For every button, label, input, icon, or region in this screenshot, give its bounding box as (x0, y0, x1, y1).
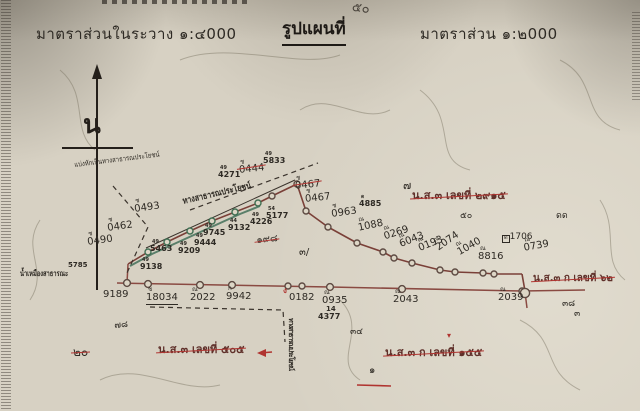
handwritten-mark: ๓๔ (350, 328, 363, 337)
red-caret-mark: ▾ (447, 332, 451, 340)
distance-number: 0182 (289, 293, 314, 303)
distance-number: 9189 (103, 290, 128, 300)
parcel-number: ณ8816 (478, 246, 503, 262)
distance-number: ณ2022 (190, 287, 215, 303)
parcel-number: ณ0739 (522, 234, 550, 254)
handwritten-mark: ๓ (574, 310, 580, 319)
parcel-number-crossed: ช0444 (238, 157, 265, 176)
vertical-stamp-label: ทางสาธารณประโยชน์ (287, 318, 294, 370)
marker-number: 449132 (228, 219, 250, 232)
marker-number: 499138 (140, 258, 162, 271)
parcel-number: ช0493 (133, 195, 160, 215)
distance-number: ก9942 (226, 286, 251, 302)
handwritten-mark: ๓/ (299, 248, 309, 258)
survey-map-page: มาตราส่วนในระวาง ๑:๔000 รูปแผนที่ มาตราส… (0, 0, 640, 411)
marker-number: 495463 (150, 240, 172, 253)
marker-number: 4377 (318, 313, 340, 321)
marker-number: 494271 (218, 166, 240, 179)
deed-ref-crossed: น.ส.๓ เลขที่ ๕๐๕ (158, 344, 244, 355)
handwritten-mark: ดด (556, 212, 568, 221)
handwritten-crossed: ๑๙๘ (256, 234, 278, 246)
deed-ref-crossed: น.ส.๓ ก เลขที่ ๑๕๕ (385, 347, 482, 358)
annotation-layer: แบ่งหักเป็นทางสาธารณประโยชน์ช0493ช0462ช0… (0, 0, 640, 411)
parcel-number: ช0963 (330, 200, 357, 220)
distance-number: ช18034 (146, 287, 178, 303)
handwritten-mark: ๑ (369, 366, 375, 376)
road-stamp-label: ทางสาธารณประโยชน์ (182, 182, 252, 207)
red-check-mark: ง (283, 287, 287, 295)
marker-number: 5785 (68, 262, 87, 269)
boundary-note: แบ่งหักเป็นทางสาธารณประโยชน์ (74, 152, 160, 169)
distance-number: ณ0935 (322, 290, 347, 306)
deed-ref-crossed: น.ส.๓ เลขที่ ๒๙๑๕ (412, 190, 506, 201)
handwritten-mark: ๗ (403, 180, 411, 191)
handwritten-crossed: ๒๐ (73, 346, 88, 358)
marker-number: 545177 (266, 207, 288, 220)
handwritten-mark: ๓๘ (562, 300, 575, 309)
distance-number: ณ2043 (393, 289, 418, 305)
distance-number: ณ2039 (498, 287, 523, 303)
parcel-number: ช0490 (86, 228, 113, 248)
marker-number: ด4885 (359, 195, 381, 208)
handwritten-mark: ๕๐ (460, 212, 472, 221)
parcel-number: ณ1088 (356, 213, 384, 234)
canal-label: น้ำเหมืองสาธารณะ (20, 270, 68, 278)
handwritten-mark: ๗๘ (114, 321, 128, 331)
marker-number: 499745 (203, 224, 225, 237)
parcel-number: ช0467 (304, 186, 331, 205)
deed-ref-crossed: น.ส.๓ ก เลขที่ ๖๒ (533, 274, 613, 284)
marker-number: 495833 (263, 152, 285, 165)
